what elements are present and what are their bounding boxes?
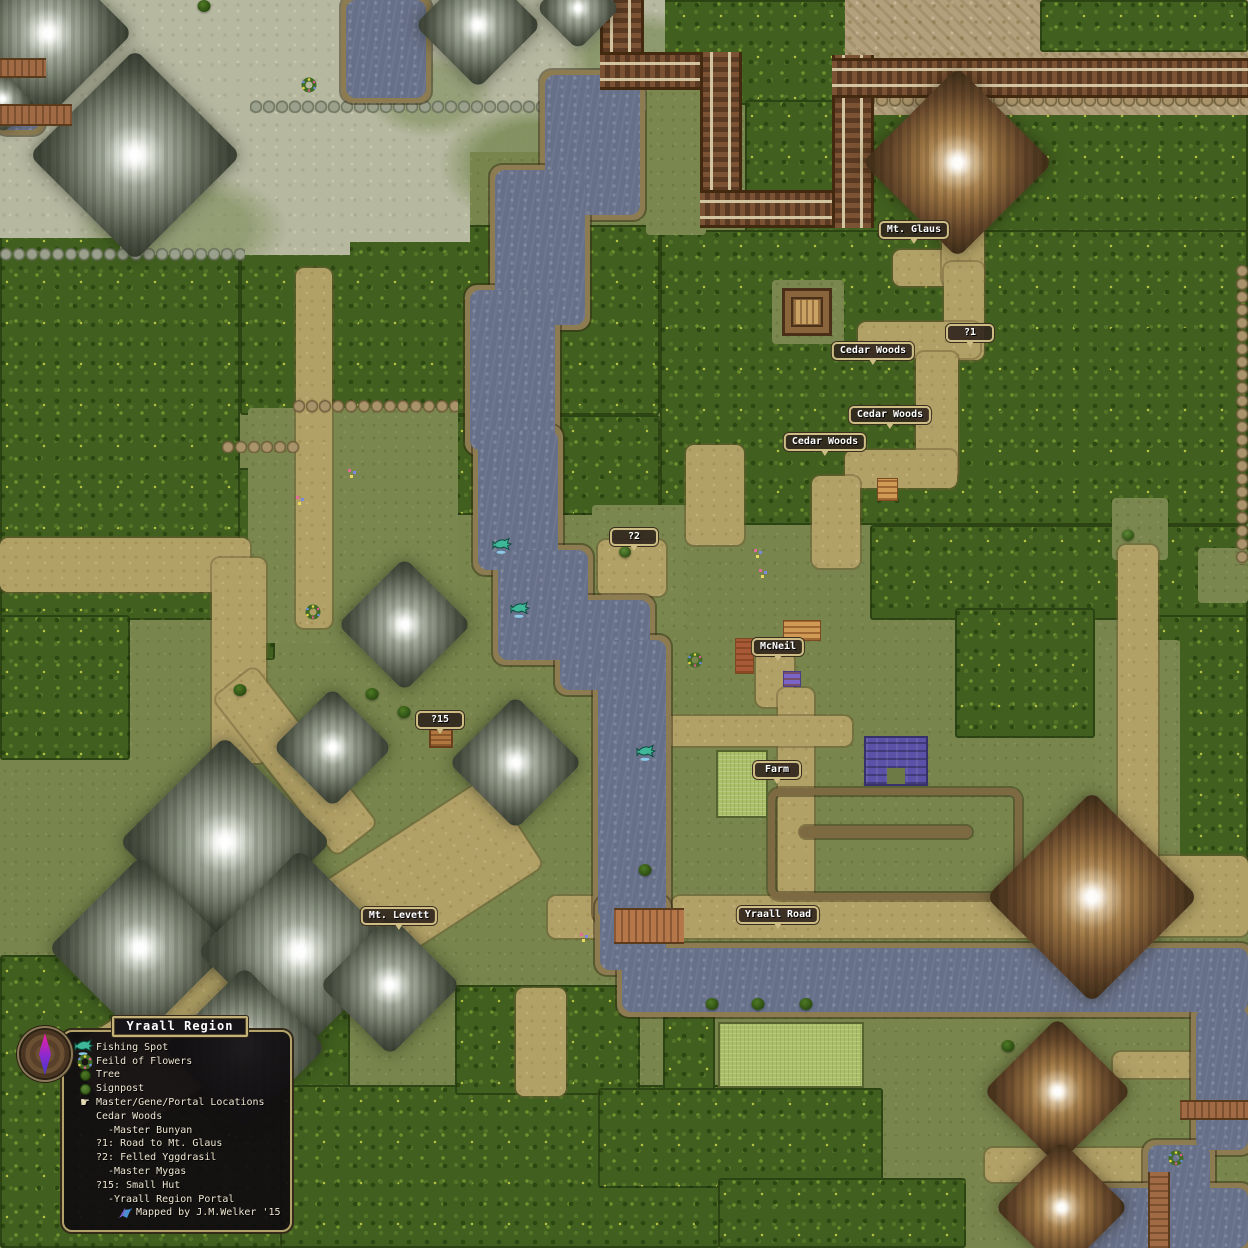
legend-label: ?15: Small Hut	[96, 1180, 180, 1192]
railroad-track	[832, 58, 1248, 98]
flower-speck-icon	[580, 933, 583, 936]
tree-icon	[398, 706, 411, 718]
flower-speck-icon	[754, 549, 757, 552]
map-label: Cedar Woods	[832, 342, 914, 360]
legend-label: Cedar Woods	[96, 1111, 162, 1123]
map-label: ?1	[946, 324, 994, 342]
map-label: Farm	[753, 761, 801, 779]
legend-row: Signpost	[74, 1082, 286, 1096]
bridge	[1148, 1172, 1170, 1248]
forest	[955, 608, 1095, 738]
legend-row: -Master Bunyan	[74, 1124, 286, 1138]
flower-speck-icon	[759, 569, 762, 572]
world-map: Mt. Glaus?1Cedar WoodsCedar WoodsCedar W…	[0, 0, 1248, 1248]
path	[1113, 1052, 1197, 1078]
legend-label: Tree	[96, 1069, 120, 1081]
legend-panel: Fishing SpotFeild of FlowersTreeSignpost…	[62, 1030, 292, 1232]
legend-row: Mapped by J.M.Welker '15	[74, 1207, 286, 1221]
pointing-hand-icon: ☛	[74, 1098, 96, 1108]
tree-icon	[1002, 1040, 1015, 1052]
legend-row: Cedar Woods	[74, 1110, 286, 1124]
tree-icon	[198, 0, 211, 12]
forest	[0, 615, 130, 760]
legend-row: ☛Master/Gene/Portal Locations	[74, 1096, 286, 1110]
river	[1196, 1008, 1248, 1150]
compass-needle-icon	[39, 1033, 51, 1075]
map-label: ?2	[610, 528, 658, 546]
compass-rose	[21, 1030, 69, 1078]
path	[516, 988, 566, 1096]
legend-row: ?1: Road to Mt. Glaus	[74, 1138, 286, 1152]
path	[845, 450, 957, 488]
tree-icon	[234, 684, 247, 696]
map-label: Mt. Glaus	[879, 221, 949, 239]
path	[686, 445, 744, 545]
forest-cedar-woods	[870, 525, 1248, 620]
yraall-road-bridge	[614, 908, 684, 944]
tree-icon	[800, 998, 813, 1010]
flower-field-icon	[1167, 1149, 1185, 1171]
bridge	[0, 58, 46, 78]
bird-icon	[114, 1206, 136, 1220]
legend-row: -Yraall Region Portal	[74, 1193, 286, 1207]
legend-label: Fishing Spot	[96, 1042, 168, 1054]
farm-field	[718, 1022, 864, 1088]
map-label: Cedar Woods	[849, 406, 931, 424]
legend-label: Signpost	[96, 1083, 144, 1095]
log-structure	[782, 288, 832, 336]
signpost-icon	[1122, 530, 1134, 541]
bridge	[1180, 1100, 1248, 1120]
map-label: ?15	[416, 711, 464, 729]
path	[660, 716, 852, 746]
forest	[663, 1012, 715, 1092]
tree-icon	[639, 864, 652, 876]
map-label: Yraall Road	[737, 906, 819, 924]
path	[296, 268, 332, 628]
legend-row: Feild of Flowers	[74, 1055, 286, 1069]
building-door	[887, 768, 905, 784]
legend-row: ?15: Small Hut	[74, 1179, 286, 1193]
legend-label: ?2: Felled Yggdrasil	[96, 1152, 216, 1164]
legend-row: Tree	[74, 1069, 286, 1083]
map-label: Cedar Woods	[784, 433, 866, 451]
log-structure-core	[794, 300, 820, 324]
cliff-ridge	[222, 440, 300, 453]
purple-patch	[783, 671, 801, 687]
forest	[718, 1178, 966, 1248]
lake	[346, 0, 426, 98]
tree-icon	[74, 1070, 96, 1081]
flower-speck-icon	[296, 496, 299, 499]
tilled-field	[877, 478, 898, 501]
legend-row: -Master Mygas	[74, 1165, 286, 1179]
river	[598, 640, 666, 920]
fishing-spot-icon	[510, 602, 532, 623]
flower-field-icon	[304, 603, 322, 625]
legend-label: ?1: Road to Mt. Glaus	[96, 1138, 222, 1150]
legend-label: -Master Bunyan	[108, 1125, 192, 1137]
flower-field-icon	[686, 651, 704, 673]
legend-label: Feild of Flowers	[96, 1056, 192, 1068]
legend-row: ?2: Felled Yggdrasil	[74, 1151, 286, 1165]
legend-label: -Yraall Region Portal	[108, 1194, 234, 1206]
bridge	[0, 104, 72, 126]
purple-building	[864, 736, 928, 786]
signpost-icon	[74, 1084, 96, 1095]
map-label: McNeil	[752, 638, 804, 656]
legend-row: Fishing Spot	[74, 1041, 286, 1055]
legend-label: Master/Gene/Portal Locations	[96, 1097, 265, 1109]
tree-icon	[706, 998, 719, 1010]
cliff-maze	[768, 788, 1022, 900]
flower-field-icon	[300, 76, 318, 98]
forest	[598, 1088, 883, 1188]
legend-title: Yraall Region	[112, 1016, 248, 1037]
forest	[1040, 0, 1248, 52]
cliff-maze-wall	[800, 826, 972, 838]
legend-label: -Master Mygas	[108, 1166, 186, 1178]
river	[478, 430, 558, 570]
path	[812, 476, 860, 568]
field-of-flowers-icon	[74, 1053, 96, 1071]
tree-icon	[752, 998, 765, 1010]
grass-clearing	[646, 90, 706, 235]
fishing-spot-icon	[492, 538, 514, 559]
fishing-spot-icon	[636, 745, 658, 766]
river	[470, 290, 555, 450]
map-label: Mt. Levett	[361, 907, 437, 925]
cliff-ridge	[1235, 265, 1248, 565]
legend-label: Mapped by J.M.Welker '15	[136, 1207, 281, 1219]
tree-icon	[366, 688, 379, 700]
cliff-ridge	[293, 398, 458, 413]
flower-speck-icon	[348, 469, 351, 472]
